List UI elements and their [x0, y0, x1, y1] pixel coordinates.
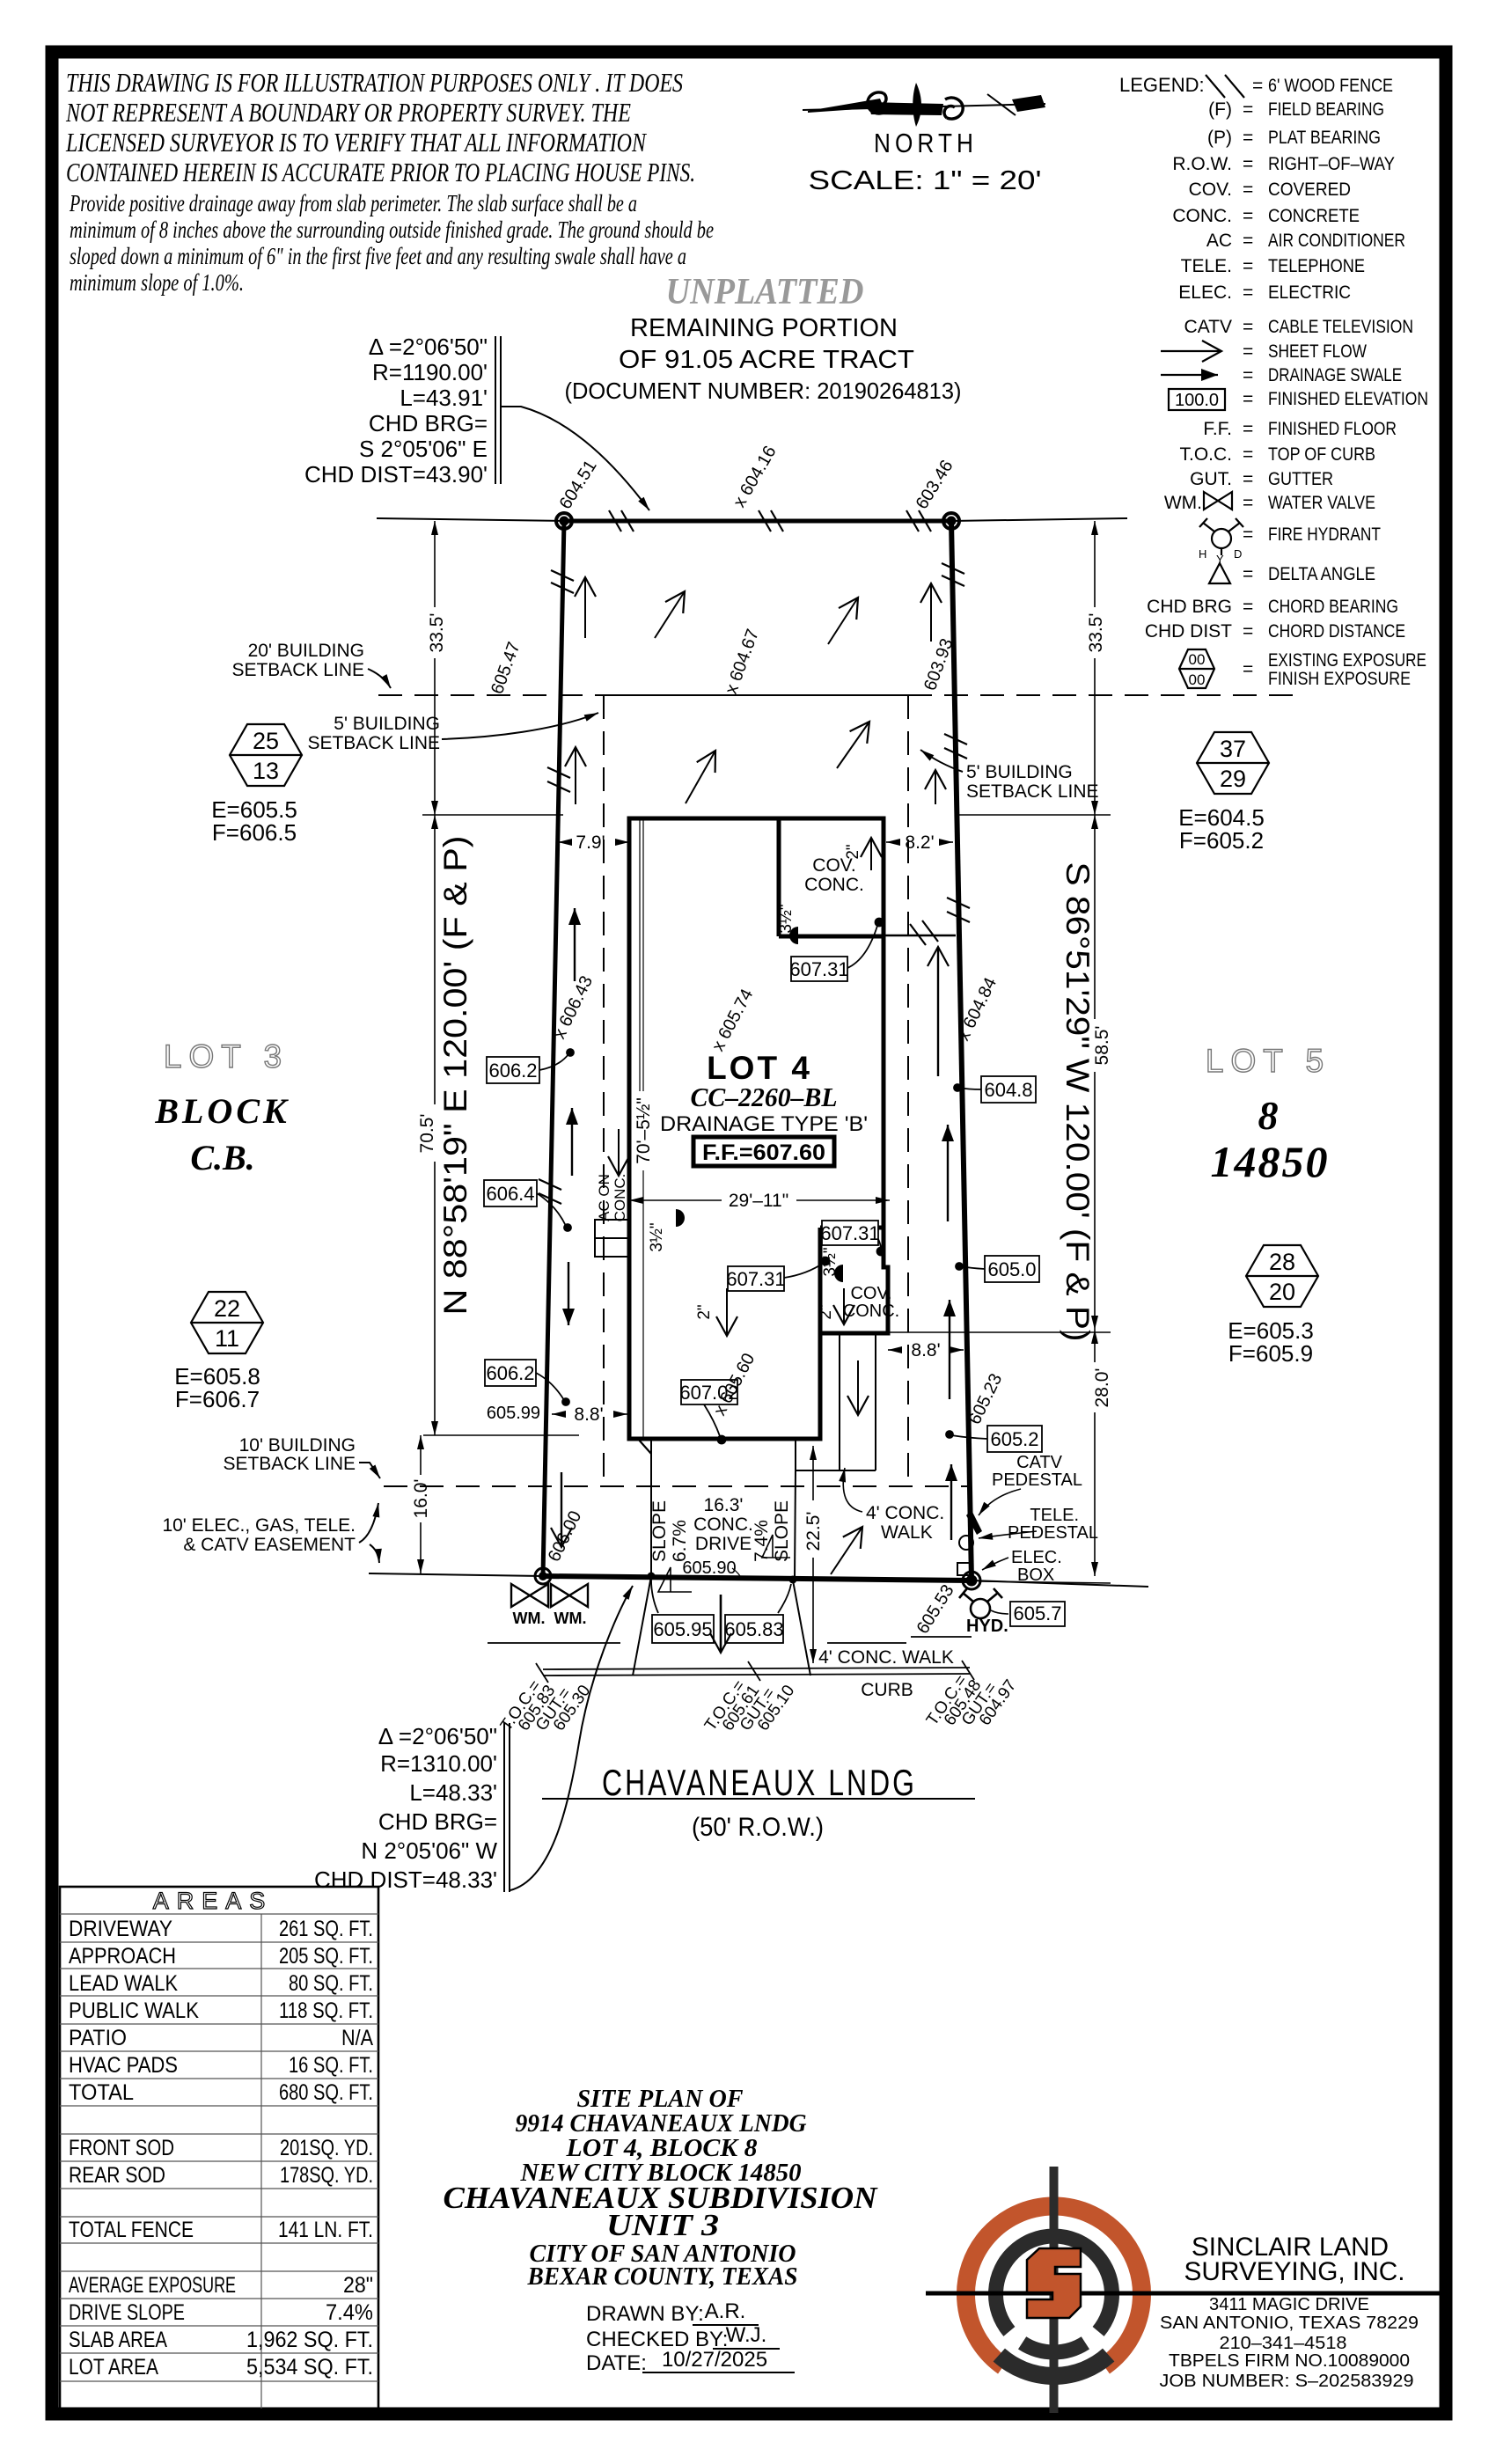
svg-text:DRAWN BY:: DRAWN BY: [586, 2302, 704, 2326]
svg-text:APPROACH: APPROACH [69, 1944, 176, 1969]
svg-text:14850: 14850 [1211, 1137, 1330, 1186]
svg-text:TELE.: TELE. [1181, 256, 1232, 276]
svg-text:DELTA ANGLE: DELTA ANGLE [1268, 564, 1375, 584]
svg-text:=: = [1243, 231, 1253, 251]
svg-text:GUTTER: GUTTER [1268, 469, 1333, 489]
svg-text:F=606.5: F=606.5 [212, 819, 297, 846]
svg-text:CHD BRG=: CHD BRG= [369, 410, 488, 436]
svg-text:FRONT SOD: FRONT SOD [69, 2136, 174, 2160]
svg-text:CURB: CURB [861, 1680, 913, 1700]
svg-text:SETBACK LINE: SETBACK LINE [223, 1454, 356, 1474]
svg-text:CONC.: CONC. [1172, 206, 1232, 226]
svg-text:37: 37 [1220, 736, 1246, 762]
svg-text:=: = [1243, 365, 1253, 385]
svg-text:R=1310.00': R=1310.00' [380, 1750, 497, 1777]
svg-text:D: D [1234, 547, 1242, 561]
svg-text:LICENSED SURVEYOR IS TO VERIFY: LICENSED SURVEYOR IS TO VERIFY THAT ALL … [65, 127, 648, 158]
svg-text:605.90: 605.90 [682, 1558, 736, 1578]
svg-text:20' BUILDING: 20' BUILDING [248, 641, 364, 661]
svg-text:EXISTING EXPOSURE: EXISTING EXPOSURE [1268, 650, 1426, 671]
svg-text:BEXAR COUNTY, TEXAS: BEXAR COUNTY, TEXAS [527, 2263, 798, 2291]
svg-text:BOX: BOX [1017, 1566, 1054, 1585]
svg-text:=: = [1243, 154, 1253, 174]
svg-text:FINISHED ELEVATION: FINISHED ELEVATION [1268, 389, 1428, 409]
svg-text:THIS DRAWING IS FOR ILLUSTRATI: THIS DRAWING IS FOR ILLUSTRATION PURPOSE… [66, 67, 683, 98]
svg-text:NORTH: NORTH [874, 128, 978, 158]
svg-text:SCALE: 1" = 20': SCALE: 1" = 20' [809, 165, 1042, 195]
svg-text:WATER VALVE: WATER VALVE [1268, 493, 1375, 513]
svg-text:FINISHED FLOOR: FINISHED FLOOR [1268, 419, 1397, 439]
svg-text:DRAINAGE SWALE: DRAINAGE SWALE [1268, 365, 1402, 385]
svg-text:F=605.9: F=605.9 [1228, 1340, 1313, 1367]
svg-text:141 LN. FT.: 141 LN. FT. [278, 2218, 373, 2242]
svg-text:604.8: 604.8 [984, 1079, 1032, 1101]
svg-text:DRIVE SLOPE: DRIVE SLOPE [69, 2300, 185, 2325]
svg-text:DATE:: DATE: [586, 2351, 647, 2375]
svg-text:SAN ANTONIO, TEXAS 78229: SAN ANTONIO, TEXAS 78229 [1160, 2314, 1419, 2333]
svg-text:33.5': 33.5' [427, 613, 447, 653]
svg-text:=: = [1243, 389, 1253, 409]
svg-text:F.F.: F.F. [1203, 419, 1232, 439]
svg-text:10/27/2025: 10/27/2025 [662, 2348, 767, 2372]
svg-text:=: = [1243, 621, 1253, 642]
svg-text:10' ELEC., GAS, TELE.: 10' ELEC., GAS, TELE. [162, 1515, 356, 1536]
svg-text:FIRE HYDRANT: FIRE HYDRANT [1268, 524, 1381, 545]
svg-text:=: = [1243, 524, 1253, 545]
svg-text:COV.: COV. [850, 1284, 891, 1303]
svg-text:00: 00 [1189, 651, 1206, 668]
svg-text:8.8': 8.8' [911, 1340, 940, 1360]
svg-text:JOB NUMBER: S–202583929: JOB NUMBER: S–202583929 [1160, 2372, 1414, 2391]
svg-text:80 SQ. FT.: 80 SQ. FT. [289, 1971, 373, 1996]
svg-text:=: = [1243, 659, 1253, 679]
svg-text:606.2: 606.2 [488, 1060, 537, 1082]
svg-text:10' BUILDING: 10' BUILDING [239, 1435, 356, 1456]
svg-text:28": 28" [343, 2273, 373, 2298]
svg-text:PUBLIC WALK: PUBLIC WALK [69, 1998, 199, 2023]
svg-text:606.2: 606.2 [486, 1362, 534, 1384]
svg-text:TELE.: TELE. [1030, 1506, 1079, 1525]
svg-text:4' CONC. WALK: 4' CONC. WALK [818, 1647, 954, 1668]
svg-text:3411 MAGIC DRIVE: 3411 MAGIC DRIVE [1209, 2295, 1369, 2314]
svg-text:WALK: WALK [881, 1522, 933, 1543]
svg-text:LOT 4: LOT 4 [707, 1050, 812, 1086]
svg-text:AC: AC [1206, 231, 1232, 251]
svg-text:178SQ. YD.: 178SQ. YD. [280, 2163, 373, 2188]
svg-text:13: 13 [253, 758, 279, 784]
svg-text:COVERED: COVERED [1268, 180, 1351, 200]
svg-text:& CATV EASEMENT: & CATV EASEMENT [183, 1535, 356, 1555]
svg-text:16.3': 16.3' [704, 1495, 744, 1515]
svg-text:5' BUILDING: 5' BUILDING [334, 714, 440, 734]
svg-text:210–341–4518: 210–341–4518 [1220, 2334, 1347, 2353]
svg-text:(P): (P) [1207, 128, 1232, 148]
svg-text:COV.: COV. [1189, 180, 1232, 200]
svg-text:FINISH EXPOSURE: FINISH EXPOSURE [1268, 669, 1411, 689]
svg-text:CABLE TELEVISION: CABLE TELEVISION [1268, 317, 1413, 337]
svg-text:8.2': 8.2' [905, 832, 934, 853]
svg-text:(50' R.O.W.): (50' R.O.W.) [692, 1813, 824, 1842]
svg-text:33.5': 33.5' [1086, 613, 1106, 653]
svg-text:=: = [1243, 282, 1253, 303]
svg-text:sloped down a minimum of 6" in: sloped down a minimum of 6" in the first… [70, 243, 686, 269]
svg-text:SHEET FLOW: SHEET FLOW [1268, 341, 1367, 362]
svg-text:LOT 4, BLOCK 8: LOT 4, BLOCK 8 [565, 2135, 757, 2162]
svg-text:CHORD BEARING: CHORD BEARING [1268, 597, 1398, 617]
svg-text:9914 CHAVANEAUX LNDG: 9914 CHAVANEAUX LNDG [516, 2110, 807, 2138]
svg-text:N 88°58'19" E 120.00' (F & P): N 88°58'19" E 120.00' (F & P) [437, 836, 473, 1316]
svg-text:607.31: 607.31 [789, 958, 848, 980]
svg-text:AVERAGE EXPOSURE: AVERAGE EXPOSURE [69, 2273, 236, 2298]
svg-text:605.0: 605.0 [987, 1258, 1036, 1280]
svg-text:Δ =2°06'50": Δ =2°06'50" [369, 334, 488, 360]
svg-text:605.7: 605.7 [1013, 1602, 1061, 1624]
svg-text:TBPELS FIRM NO.10089000: TBPELS FIRM NO.10089000 [1169, 2351, 1410, 2371]
svg-text:605.99: 605.99 [487, 1404, 540, 1423]
svg-text:F=606.7: F=606.7 [175, 1386, 260, 1412]
svg-text:LOT 5: LOT 5 [1206, 1043, 1331, 1079]
svg-text:TOTAL: TOTAL [69, 2080, 134, 2105]
svg-text:605.2: 605.2 [990, 1428, 1038, 1450]
svg-text:607.31: 607.31 [820, 1222, 879, 1244]
svg-text:605.95: 605.95 [653, 1618, 712, 1640]
svg-text:SETBACK LINE: SETBACK LINE [307, 733, 440, 753]
svg-text:AREAS: AREAS [153, 1888, 274, 1914]
svg-text:F.F.=607.60: F.F.=607.60 [702, 1140, 825, 1165]
svg-text:SLAB AREA: SLAB AREA [69, 2328, 167, 2352]
svg-text:22.5': 22.5' [803, 1512, 824, 1551]
svg-text:5' BUILDING: 5' BUILDING [966, 762, 1073, 782]
svg-text:ELEC.: ELEC. [1178, 282, 1232, 303]
svg-text:LOT 3: LOT 3 [164, 1038, 289, 1074]
svg-text:16 SQ. FT.: 16 SQ. FT. [289, 2053, 373, 2078]
svg-text:minimum of 8 inches above the: minimum of 8 inches above the surroundin… [70, 216, 714, 243]
svg-text:BLOCK: BLOCK [154, 1091, 290, 1131]
svg-text:HYD.: HYD. [966, 1617, 1008, 1636]
svg-text:C.B.: C.B. [190, 1138, 254, 1177]
svg-text:WM.: WM. [1164, 493, 1202, 513]
svg-text:H: H [1199, 547, 1206, 561]
svg-text:L=43.91': L=43.91' [400, 385, 488, 411]
svg-text:minimum slope of 1.0%.: minimum slope of 1.0%. [70, 269, 244, 296]
svg-text:CHD BRG: CHD BRG [1147, 597, 1232, 617]
svg-text:7.4%: 7.4% [326, 2300, 373, 2325]
svg-text:25: 25 [253, 728, 279, 754]
svg-text:=: = [1243, 564, 1253, 584]
svg-text:=: = [1243, 469, 1253, 489]
svg-text:CHAVANEAUX LNDG: CHAVANEAUX LNDG [602, 1762, 917, 1803]
svg-text:=: = [1243, 206, 1253, 226]
svg-text:2": 2" [695, 1304, 714, 1319]
svg-text:8.8': 8.8' [574, 1404, 603, 1425]
svg-text:A.R.: A.R. [705, 2299, 746, 2323]
svg-text:2": 2" [844, 844, 862, 859]
svg-text:7.9': 7.9' [576, 832, 605, 853]
svg-text:WM.: WM. [513, 1610, 546, 1627]
svg-text:N/A: N/A [341, 2026, 373, 2050]
svg-text:PEDESTAL: PEDESTAL [992, 1470, 1082, 1490]
svg-text:WM.: WM. [554, 1610, 587, 1627]
svg-text:AC ON: AC ON [596, 1174, 612, 1221]
svg-text:LOT AREA: LOT AREA [69, 2355, 158, 2380]
svg-text:CHD DIST=43.90': CHD DIST=43.90' [304, 461, 488, 488]
svg-text:00: 00 [1189, 671, 1206, 688]
svg-text:CONCRETE: CONCRETE [1268, 206, 1360, 226]
svg-text:TOP OF CURB: TOP OF CURB [1268, 444, 1375, 465]
svg-text:607.31: 607.31 [726, 1268, 785, 1290]
svg-text:2": 2" [817, 1304, 835, 1319]
svg-text:R=1190.00': R=1190.00' [372, 359, 488, 385]
svg-text:205 SQ. FT.: 205 SQ. FT. [279, 1944, 373, 1969]
svg-text:22: 22 [214, 1295, 240, 1322]
svg-text:29: 29 [1220, 766, 1246, 792]
svg-text:HVAC PADS: HVAC PADS [69, 2053, 178, 2078]
svg-text:20: 20 [1269, 1279, 1295, 1305]
svg-text:CC–2260–BL: CC–2260–BL [691, 1082, 838, 1112]
svg-text:PATIO: PATIO [69, 2026, 127, 2050]
svg-text:SETBACK LINE: SETBACK LINE [966, 781, 1099, 802]
svg-text:201SQ. YD.: 201SQ. YD. [280, 2136, 373, 2160]
svg-text:(F): (F) [1208, 99, 1232, 120]
svg-text:CONC.: CONC. [693, 1514, 753, 1535]
svg-text:L=48.33': L=48.33' [409, 1779, 497, 1806]
svg-text:CONC.: CONC. [612, 1174, 628, 1222]
svg-text:LEGEND:: LEGEND: [1119, 74, 1205, 96]
svg-text:SLOPE: SLOPE [649, 1500, 670, 1562]
svg-text:CHD BRG=: CHD BRG= [378, 1808, 497, 1835]
svg-text:6.7%: 6.7% [670, 1520, 690, 1562]
svg-text:REAR SOD: REAR SOD [69, 2163, 165, 2188]
svg-text:=: = [1243, 444, 1253, 465]
svg-text:28.0': 28.0' [1092, 1368, 1112, 1408]
svg-text:N 2°05'06" W: N 2°05'06" W [361, 1837, 497, 1864]
svg-text:=: = [1243, 180, 1253, 200]
svg-text:3½": 3½" [777, 904, 796, 933]
svg-text:UNPLATTED: UNPLATTED [666, 272, 864, 312]
svg-text:OF 91.05 ACRE TRACT: OF 91.05 ACRE TRACT [619, 346, 914, 374]
svg-text:70'–5½": 70'–5½" [634, 1097, 654, 1164]
svg-text:680 SQ. FT.: 680 SQ. FT. [279, 2080, 373, 2105]
svg-text:SITE PLAN OF: SITE PLAN OF [577, 2086, 744, 2113]
svg-text:CHORD DISTANCE: CHORD DISTANCE [1268, 621, 1405, 642]
svg-text:TELEPHONE: TELEPHONE [1268, 256, 1365, 276]
svg-text:SETBACK LINE: SETBACK LINE [231, 660, 364, 680]
svg-text:TOTAL FENCE: TOTAL FENCE [69, 2218, 194, 2242]
svg-text:UNIT 3: UNIT 3 [606, 2208, 719, 2242]
svg-text:SLOPE: SLOPE [772, 1500, 792, 1562]
svg-text:=: = [1243, 256, 1253, 276]
svg-text:T.O.C.: T.O.C. [1179, 444, 1232, 465]
svg-text:=: = [1243, 128, 1253, 148]
svg-text:S 86°51'29" W 120.00' (F & P): S 86°51'29" W 120.00' (F & P) [1060, 862, 1096, 1342]
svg-text:8: 8 [1258, 1093, 1279, 1138]
svg-text:REMAINING PORTION: REMAINING PORTION [630, 314, 898, 342]
svg-text:(DOCUMENT NUMBER: 2019026481: (DOCUMENT NUMBER: 20190264813) [565, 378, 962, 404]
svg-text:=: = [1243, 99, 1253, 120]
svg-text:F=605.2: F=605.2 [1179, 827, 1264, 854]
svg-text:=: = [1243, 317, 1253, 337]
svg-text:605.83: 605.83 [724, 1618, 783, 1640]
svg-text:FIELD BEARING: FIELD BEARING [1268, 99, 1384, 120]
svg-text:W.J.: W.J. [726, 2323, 767, 2347]
svg-text:=: = [1243, 597, 1253, 617]
svg-text:Δ =2°06'50": Δ =2°06'50" [378, 1723, 497, 1749]
svg-text:CATV: CATV [1184, 317, 1232, 337]
svg-text:CONC.: CONC. [804, 875, 864, 895]
svg-text:6' WOOD FENCE: 6' WOOD FENCE [1268, 76, 1393, 96]
svg-text:1,962 SQ. FT.: 1,962 SQ. FT. [246, 2328, 373, 2352]
svg-text:7.4%: 7.4% [752, 1520, 772, 1562]
svg-text:70.5': 70.5' [417, 1114, 437, 1154]
svg-text:DRIVEWAY: DRIVEWAY [69, 1917, 172, 1941]
svg-text:Provide positive drainage away: Provide positive drainage away from slab… [69, 190, 637, 216]
svg-text:11: 11 [215, 1325, 239, 1352]
svg-text:NOT REPRESENT A BOUNDARY OR PR: NOT REPRESENT A BOUNDARY OR PROPERTY SUR… [65, 97, 631, 128]
svg-text:LEAD WALK: LEAD WALK [69, 1971, 178, 1996]
svg-text:DRIVE: DRIVE [695, 1534, 752, 1554]
svg-text:606.4: 606.4 [486, 1183, 534, 1205]
svg-text:PLAT BEARING: PLAT BEARING [1268, 128, 1381, 148]
svg-text:DRAINAGE TYPE 'B': DRAINAGE TYPE 'B' [660, 1112, 868, 1136]
svg-text:RIGHT–OF–WAY: RIGHT–OF–WAY [1268, 154, 1395, 174]
svg-text:3½": 3½" [648, 1222, 666, 1251]
svg-text:CHD DIST: CHD DIST [1145, 621, 1232, 642]
svg-text:ELEC.: ELEC. [1011, 1548, 1062, 1567]
svg-text:29'–11": 29'–11" [729, 1191, 788, 1211]
svg-text:=: = [1252, 76, 1263, 96]
svg-text:118 SQ. FT.: 118 SQ. FT. [279, 1998, 373, 2023]
svg-text:5,534 SQ. FT.: 5,534 SQ. FT. [246, 2355, 373, 2380]
svg-text:=: = [1243, 493, 1253, 513]
svg-text:100.0: 100.0 [1175, 391, 1219, 410]
svg-text:SURVEYING, INC.: SURVEYING, INC. [1184, 2257, 1405, 2286]
svg-text:4' CONC.: 4' CONC. [866, 1503, 944, 1523]
svg-text:CONC.: CONC. [843, 1302, 899, 1321]
svg-text:ELECTRIC: ELECTRIC [1268, 282, 1351, 303]
svg-text:GUT.: GUT. [1190, 469, 1232, 489]
svg-text:28: 28 [1269, 1249, 1295, 1275]
svg-text:16.0': 16.0' [411, 1479, 431, 1519]
svg-text:=: = [1243, 419, 1253, 439]
svg-text:261 SQ. FT.: 261 SQ. FT. [279, 1917, 373, 1941]
svg-text:CHD DIST=48.33': CHD DIST=48.33' [314, 1866, 497, 1893]
svg-text:CATV: CATV [1016, 1453, 1063, 1472]
svg-text:S 2°05'06" E: S 2°05'06" E [359, 436, 488, 462]
svg-text:R.O.W.: R.O.W. [1172, 154, 1232, 174]
svg-text:=: = [1243, 341, 1253, 362]
svg-text:AIR CONDITIONER: AIR CONDITIONER [1268, 231, 1405, 251]
svg-text:CONTAINED HEREIN IS ACCURATE P: CONTAINED HEREIN IS ACCURATE PRIOR TO PL… [66, 157, 695, 187]
